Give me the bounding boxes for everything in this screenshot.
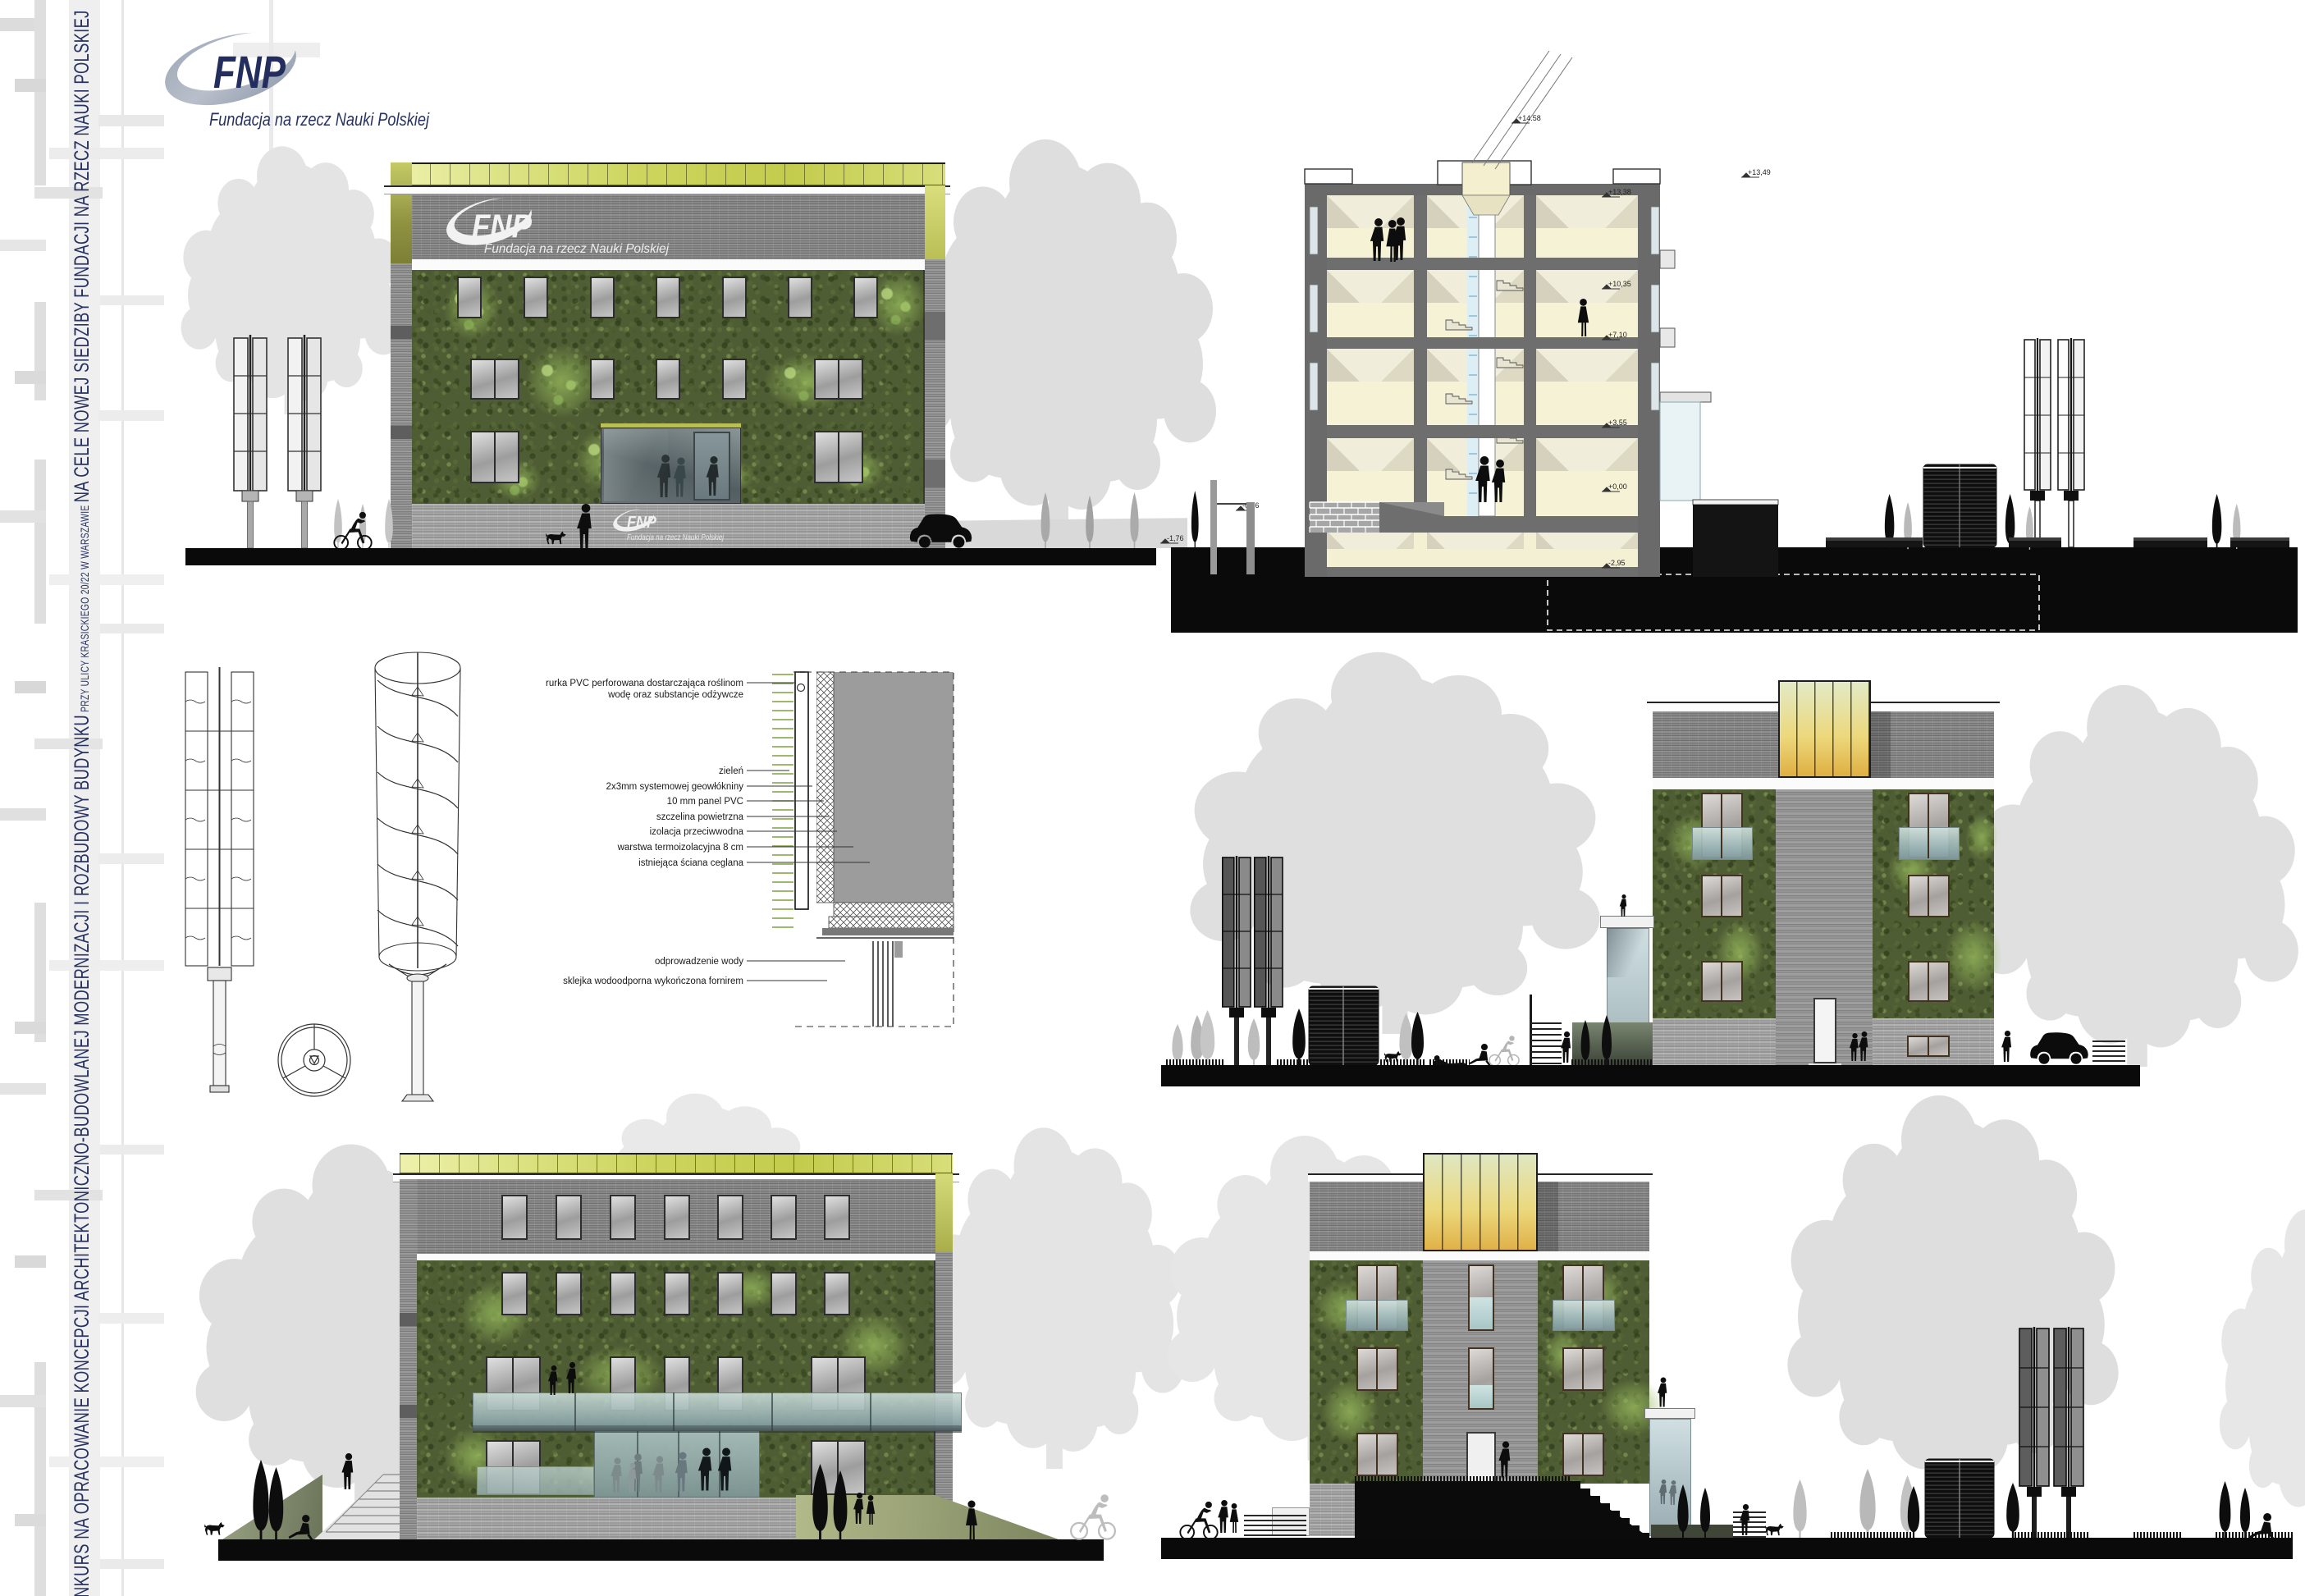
svg-text:odprowadzenie wody: odprowadzenie wody <box>655 957 743 967</box>
svg-text:+7,10: +7,10 <box>1608 331 1627 339</box>
svg-text:-2,95: -2,95 <box>1608 559 1626 567</box>
svg-text:zieleń: zieleń <box>719 766 743 776</box>
svg-text:+0,00: +0,00 <box>1608 482 1627 491</box>
svg-text:istniejąca ściana ceglana: istniejąca ściana ceglana <box>638 858 743 868</box>
svg-text:wodę oraz substancje odżywcze: wodę oraz substancje odżywcze <box>607 690 743 700</box>
svg-text:rurka PVC perforowana dostarcz: rurka PVC perforowana dostarczająca rośl… <box>546 679 743 688</box>
svg-text:+14.58: +14.58 <box>1518 114 1541 122</box>
svg-text:FNP: FNP <box>472 208 532 245</box>
svg-text:warstwa termoizolacyjna 8 cm: warstwa termoizolacyjna 8 cm <box>617 843 743 853</box>
svg-text:szczelina powietrzna: szczelina powietrzna <box>656 812 744 822</box>
svg-text:+10,35: +10,35 <box>1608 280 1631 288</box>
svg-text:FNP: FNP <box>213 46 286 98</box>
svg-text:2x3mm systemowej geowłókniny: 2x3mm systemowej geowłókniny <box>606 782 744 792</box>
svg-text:+3,55: +3,55 <box>1608 418 1627 427</box>
svg-text:sklejka wodoodporna wykończona: sklejka wodoodporna wykończona fornirem <box>563 976 743 986</box>
svg-text:Fundacja na rzecz Nauki Polski: Fundacja na rzecz Nauki Polskiej <box>484 242 669 256</box>
svg-text:Fundacja na rzecz Nauki Polski: Fundacja na rzecz Nauki Polskiej <box>209 109 430 130</box>
svg-text:FNP: FNP <box>627 514 657 532</box>
svg-text:+13,49: +13,49 <box>1748 168 1771 176</box>
svg-text:izolacja przeciwwodna: izolacja przeciwwodna <box>650 827 744 837</box>
svg-text:10 mm panel PVC: 10 mm panel PVC <box>667 797 743 807</box>
svg-text:Fundacja na rzecz Nauki Polski: Fundacja na rzecz Nauki Polskiej <box>627 533 725 542</box>
svg-text:-1,76: -1,76 <box>1167 534 1184 542</box>
svg-text:+13,38: +13,38 <box>1608 188 1631 196</box>
